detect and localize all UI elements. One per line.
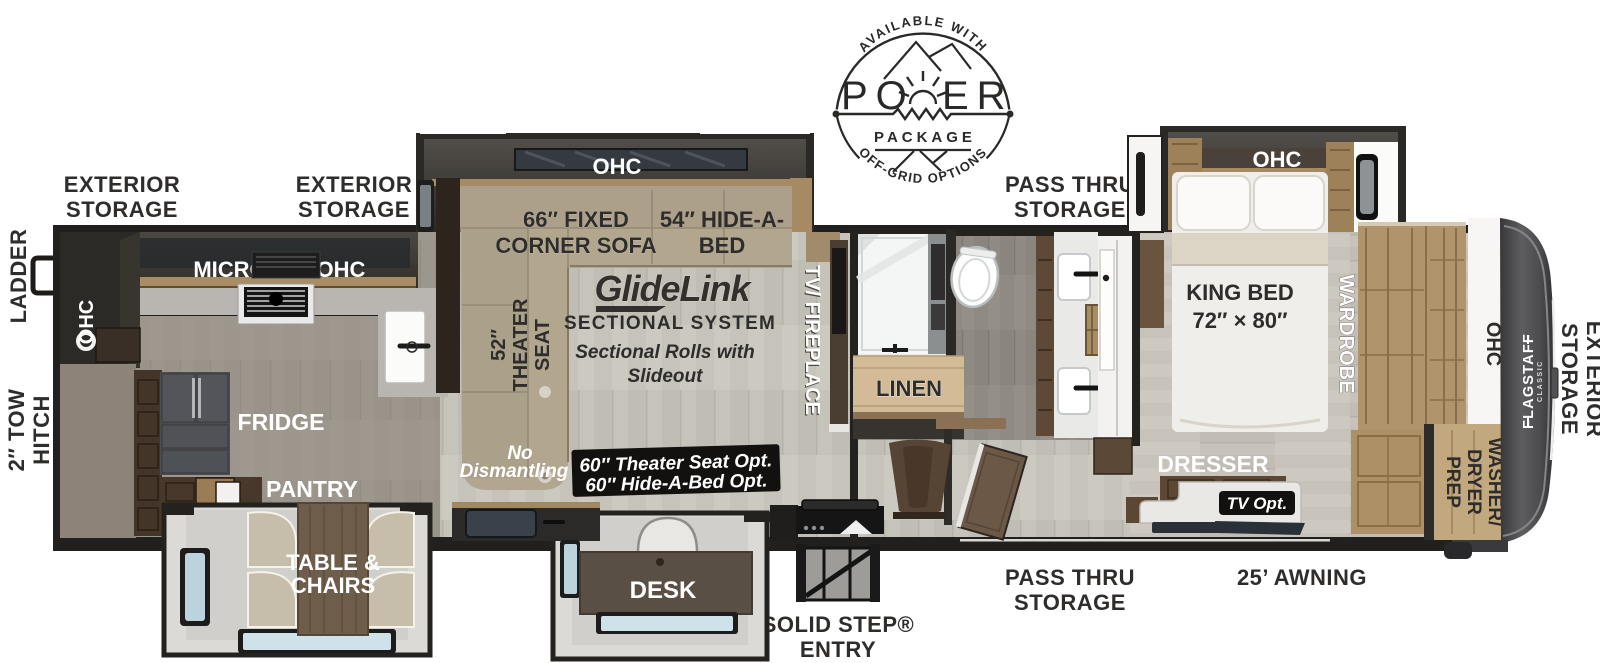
svg-text:PACKAGE: PACKAGE	[874, 129, 976, 146]
svg-text:OHC: OHC	[317, 257, 366, 282]
svg-text:PASS THRUSTORAGE: PASS THRUSTORAGE	[1005, 172, 1135, 222]
svg-text:ER: ER	[942, 74, 1014, 118]
svg-text:PASS THRUSTORAGE: PASS THRUSTORAGE	[1005, 565, 1135, 615]
svg-text:LINEN: LINEN	[876, 376, 942, 401]
svg-text:60″ Theater Seat Opt.60″ Hide-: 60″ Theater Seat Opt.60″ Hide-A-Bed Opt.	[579, 450, 773, 496]
svg-text:EXTERIORSTORAGE: EXTERIORSTORAGE	[1557, 321, 1600, 437]
svg-text:GlideLink: GlideLink	[594, 268, 752, 309]
svg-text:WARDROBE: WARDROBE	[1335, 275, 1357, 394]
svg-text:OHC: OHC	[593, 154, 642, 179]
svg-text:TV Opt.: TV Opt.	[1227, 494, 1287, 513]
svg-text:EXTERIORSTORAGE: EXTERIORSTORAGE	[296, 172, 412, 222]
svg-text:OHC: OHC	[1253, 147, 1302, 172]
svg-text:PO: PO	[841, 74, 915, 118]
svg-text:TV/ FIREPLACE: TV/ FIREPLACE	[801, 265, 823, 415]
svg-text:SECTIONAL SYSTEM: SECTIONAL SYSTEM	[564, 313, 776, 334]
svg-text:LADDER: LADDER	[6, 229, 31, 324]
svg-text:DESK: DESK	[630, 577, 697, 604]
svg-text:OHC: OHC	[76, 300, 98, 344]
svg-text:DRESSER: DRESSER	[1157, 451, 1269, 477]
svg-text:CLASSIC: CLASSIC	[1537, 360, 1544, 402]
svg-text:2″ TOWHITCH: 2″ TOWHITCH	[4, 389, 54, 472]
svg-text:FRIDGE: FRIDGE	[238, 409, 325, 435]
svg-text:FLAGSTAFF: FLAGSTAFF	[1521, 333, 1537, 429]
svg-text:EXTERIORSTORAGE: EXTERIORSTORAGE	[64, 172, 180, 222]
svg-text:TABLE &CHAIRS: TABLE &CHAIRS	[286, 550, 380, 598]
svg-text:25’ AWNING: 25’ AWNING	[1237, 565, 1367, 590]
svg-text:PANTRY: PANTRY	[266, 476, 358, 502]
